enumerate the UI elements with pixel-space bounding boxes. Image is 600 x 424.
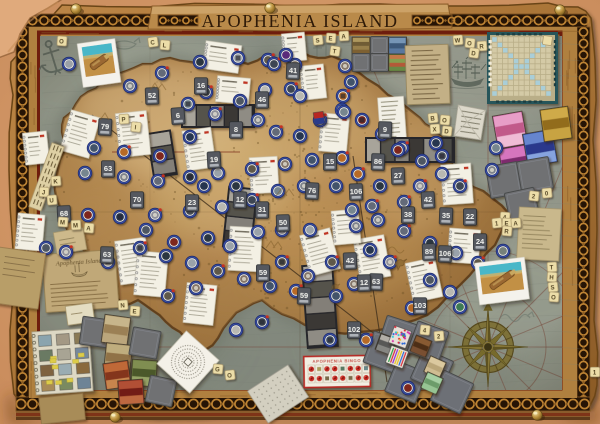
svg-text:S: S xyxy=(315,38,320,44)
svg-text:68: 68 xyxy=(60,209,69,218)
svg-text:E: E xyxy=(328,36,332,42)
svg-text:42: 42 xyxy=(424,195,433,204)
svg-text:M: M xyxy=(60,220,65,226)
svg-text:106: 106 xyxy=(439,249,452,258)
svg-text:X: X xyxy=(432,127,436,133)
svg-text:H: H xyxy=(549,275,554,281)
svg-text:59: 59 xyxy=(300,291,309,300)
svg-text:12: 12 xyxy=(236,195,245,204)
svg-text:35: 35 xyxy=(442,211,451,220)
svg-text:50: 50 xyxy=(279,218,288,227)
svg-text:106: 106 xyxy=(350,187,363,196)
svg-text:86: 86 xyxy=(374,157,383,166)
svg-text:63: 63 xyxy=(104,164,112,173)
svg-text:70: 70 xyxy=(133,195,141,204)
svg-text:41: 41 xyxy=(289,66,298,75)
svg-text:W: W xyxy=(455,38,462,45)
svg-text:E: E xyxy=(132,309,136,315)
svg-text:15: 15 xyxy=(326,157,334,166)
svg-text:79: 79 xyxy=(101,122,110,131)
svg-text:22: 22 xyxy=(466,212,474,221)
svg-text:P: P xyxy=(121,117,125,123)
svg-text:T: T xyxy=(550,265,554,271)
svg-text:76: 76 xyxy=(308,186,317,195)
svg-text:89: 89 xyxy=(425,247,434,256)
svg-text:9: 9 xyxy=(383,125,387,134)
svg-text:APOPHENIA ISLAND: APOPHENIA ISLAND xyxy=(201,11,398,31)
svg-text:O: O xyxy=(551,295,556,301)
svg-text:8: 8 xyxy=(234,125,238,134)
svg-text:24: 24 xyxy=(476,237,485,246)
svg-text:27: 27 xyxy=(394,171,403,180)
svg-text:52: 52 xyxy=(148,91,157,100)
svg-text:42: 42 xyxy=(346,256,355,265)
svg-text:63: 63 xyxy=(103,250,112,259)
svg-text:O: O xyxy=(59,39,64,45)
svg-text:O: O xyxy=(442,118,448,124)
svg-text:16: 16 xyxy=(197,81,205,90)
svg-text:12: 12 xyxy=(360,278,369,287)
svg-text:102: 102 xyxy=(348,325,361,334)
svg-text:M: M xyxy=(73,223,78,229)
svg-text:19: 19 xyxy=(210,155,219,164)
svg-text:APOPHENIA BINGO: APOPHENIA BINGO xyxy=(312,358,361,364)
svg-text:31: 31 xyxy=(258,205,266,214)
svg-text:103: 103 xyxy=(414,301,427,310)
svg-text:46: 46 xyxy=(258,95,266,104)
svg-text:63: 63 xyxy=(372,277,381,286)
svg-text:59: 59 xyxy=(259,268,267,277)
svg-text:23: 23 xyxy=(188,198,196,207)
svg-text:38: 38 xyxy=(404,210,412,219)
svg-text:J: J xyxy=(42,190,46,196)
svg-text:6: 6 xyxy=(176,111,181,120)
svg-text:G: G xyxy=(215,367,221,373)
svg-text:U: U xyxy=(49,198,54,204)
svg-text:S: S xyxy=(550,285,555,291)
svg-text:N: N xyxy=(120,303,125,309)
